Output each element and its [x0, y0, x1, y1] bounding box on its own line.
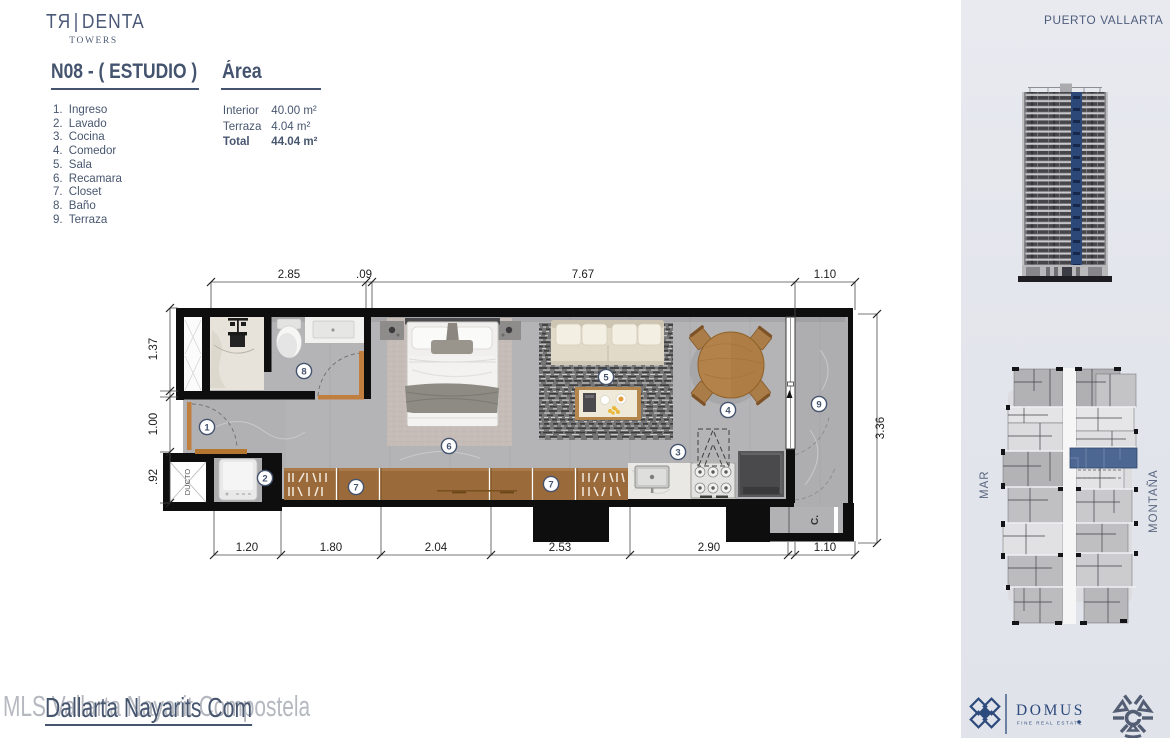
svg-text:2: 2: [262, 474, 267, 485]
svg-text:2.04: 2.04: [425, 542, 448, 554]
svg-text:.92: .92: [148, 469, 160, 485]
svg-text:1.10: 1.10: [814, 269, 836, 281]
svg-text:1.37: 1.37: [148, 338, 160, 360]
svg-text:3: 3: [675, 448, 680, 459]
svg-text:2.85: 2.85: [278, 269, 300, 281]
svg-text:7.67: 7.67: [572, 269, 594, 281]
svg-text:1.00: 1.00: [148, 413, 160, 435]
svg-text:1.10: 1.10: [814, 542, 836, 554]
svg-text:1: 1: [204, 423, 210, 434]
svg-text:8: 8: [301, 367, 306, 378]
svg-text:DUCTO: DUCTO: [183, 469, 192, 496]
svg-text:C.: C.: [810, 515, 821, 525]
svg-text:2.90: 2.90: [698, 542, 720, 554]
svg-text:1.20: 1.20: [236, 542, 258, 554]
svg-text:6: 6: [446, 442, 451, 453]
svg-text:4: 4: [725, 406, 731, 417]
svg-text:1.80: 1.80: [320, 542, 342, 554]
svg-text:5: 5: [603, 373, 609, 384]
svg-text:.09: .09: [356, 269, 372, 281]
svg-text:3.36: 3.36: [875, 417, 887, 439]
svg-text:7: 7: [353, 483, 358, 494]
svg-text:7: 7: [548, 480, 553, 491]
svg-text:9: 9: [816, 400, 821, 411]
svg-text:2.53: 2.53: [549, 542, 571, 554]
